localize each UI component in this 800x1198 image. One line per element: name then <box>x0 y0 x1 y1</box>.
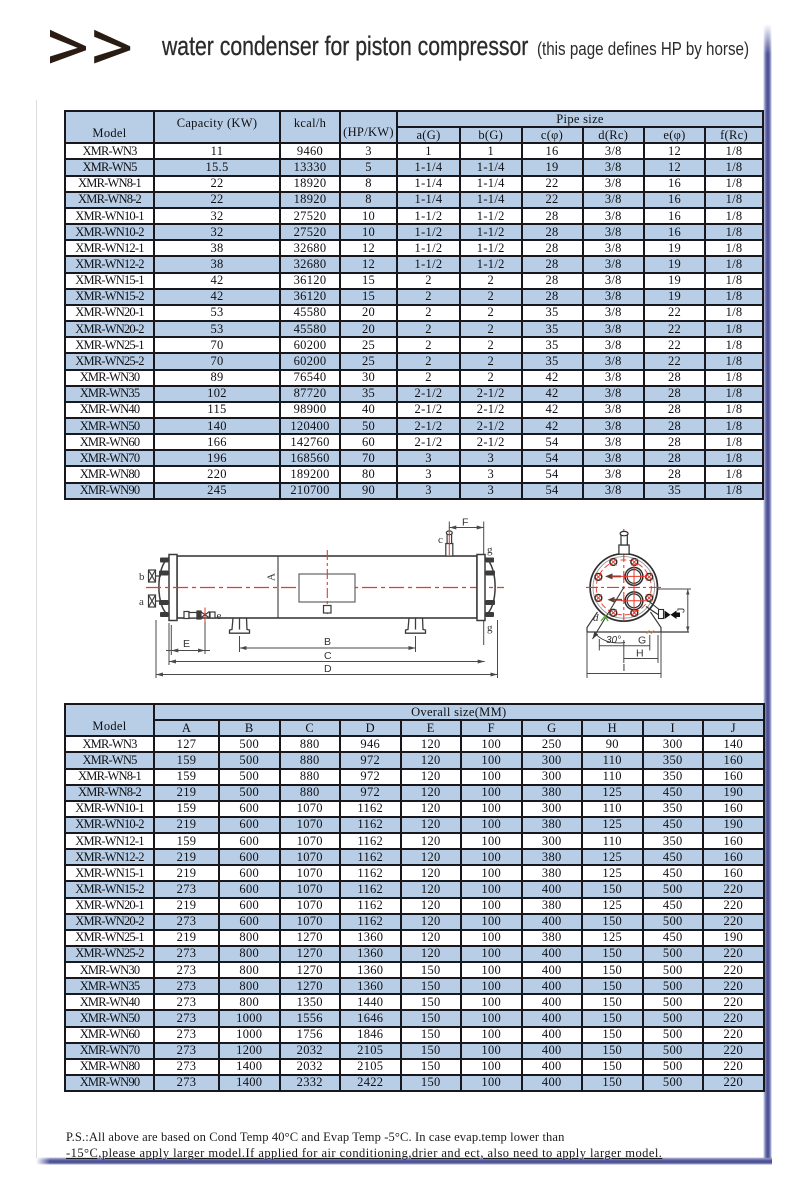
svg-text:J: J <box>676 608 688 613</box>
svg-text:A: A <box>266 573 278 581</box>
svg-text:F: F <box>462 517 468 529</box>
svg-text:I: I <box>623 662 626 674</box>
svg-text:g: g <box>487 622 493 634</box>
svg-text:30°: 30° <box>606 635 621 646</box>
svg-text:C: C <box>324 650 332 662</box>
svg-text:e: e <box>217 610 222 622</box>
svg-text:G: G <box>638 635 646 647</box>
svg-text:E: E <box>183 638 190 650</box>
svg-text:D: D <box>324 663 332 675</box>
svg-text:a: a <box>139 596 144 608</box>
svg-text:c: c <box>438 534 443 546</box>
svg-text:H: H <box>636 648 644 660</box>
svg-text:g: g <box>487 544 493 556</box>
svg-text:b: b <box>139 571 145 583</box>
svg-text:d: d <box>593 612 599 624</box>
svg-text:B: B <box>324 636 331 648</box>
